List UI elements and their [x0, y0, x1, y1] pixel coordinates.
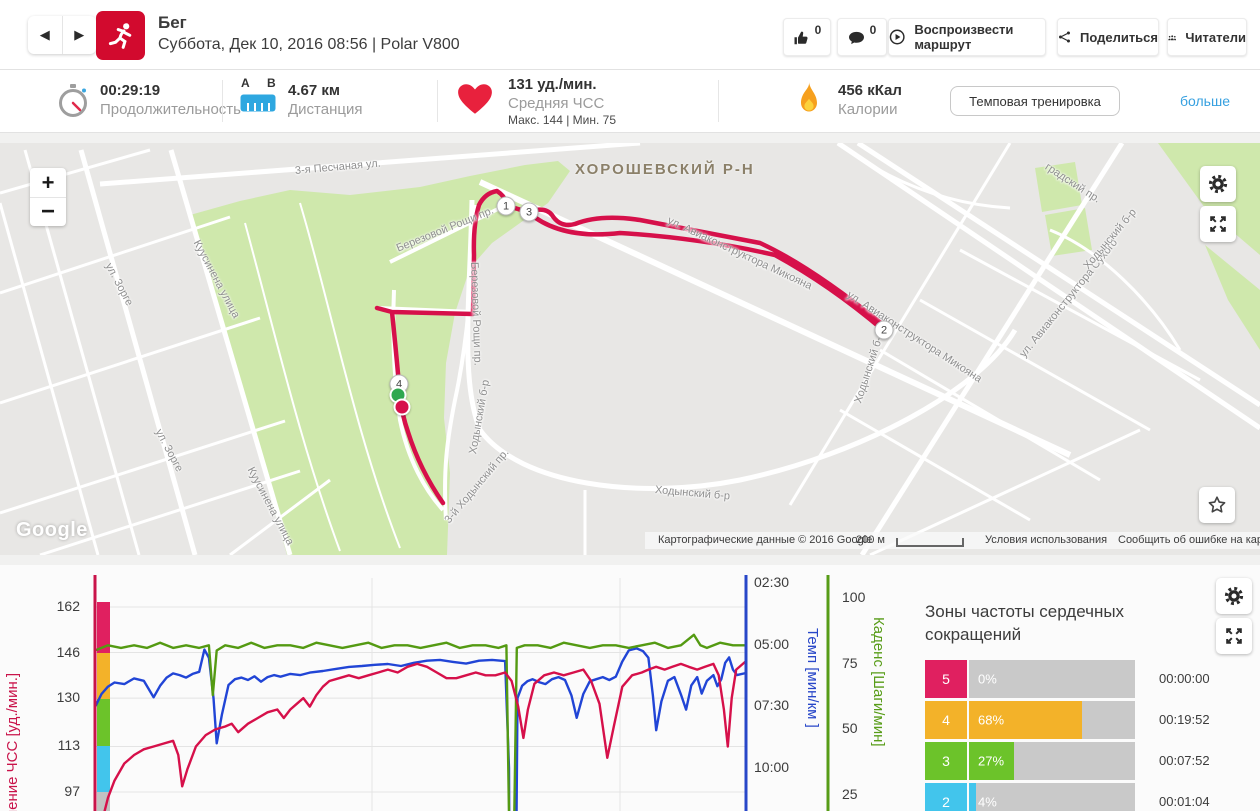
zone-time: 00:01:04	[1159, 783, 1210, 811]
map-attribution: Картографические данные © 2016 Google	[658, 534, 872, 546]
district-label: ХОРОШЕВСКИЙ Р-Н	[575, 161, 755, 178]
zone-time: 00:00:00	[1159, 660, 1210, 698]
comment-count: 0	[870, 23, 877, 37]
route-km-marker[interactable]: 3	[520, 203, 539, 222]
share-icon	[1058, 29, 1071, 45]
play-route-button[interactable]: Воспроизвести маршрут	[888, 18, 1046, 56]
gear-icon	[1223, 585, 1245, 607]
pace-axis-label: Темп [мин/км ]	[804, 628, 821, 811]
next-workout-button[interactable]: ▶	[63, 16, 97, 54]
stats-bar: 00:29:19 Продолжительность A B 4.67 км Д…	[0, 70, 1260, 133]
hr-zone-row: 24%00:01:04	[925, 783, 1210, 811]
divider	[437, 80, 438, 122]
next-arrow-icon: ▶	[74, 27, 84, 43]
hr-zone-row: 468%00:19:52	[925, 701, 1210, 739]
training-chart-section: 1621461301139702:3005:0007:3010:00100755…	[0, 565, 1260, 811]
star-icon	[1207, 495, 1227, 515]
more-link[interactable]: больше	[1180, 93, 1230, 109]
axis-tick: 162	[30, 598, 80, 614]
hr-axis-label: Значение ЧСС [уд./мин.]	[4, 633, 21, 811]
series-hr	[95, 661, 746, 811]
like-button[interactable]: 0	[783, 18, 831, 56]
axis-tick: 50	[842, 720, 858, 736]
readers-label: Читатели	[1185, 30, 1246, 45]
readers-button[interactable]: Читатели	[1167, 18, 1247, 56]
training-benefit-button[interactable]: Темповая тренировка	[950, 86, 1120, 116]
route-a-label: A	[241, 76, 250, 90]
workout-pager: ◀ ▶	[28, 16, 96, 54]
duration-value: 00:29:19	[100, 82, 160, 99]
axis-tick: 75	[842, 655, 858, 671]
distance-label: Дистанция	[288, 101, 362, 118]
cadence-axis-label: Каденс [Шаги/мин]	[870, 617, 887, 811]
zone-bar-track: 4%	[969, 783, 1135, 811]
workout-title: Бег	[158, 13, 187, 33]
zone-bar-track: 27%	[969, 742, 1135, 780]
avg-hr-label: Средняя ЧСС	[508, 95, 604, 112]
map-settings-button[interactable]	[1200, 166, 1236, 202]
running-sport-icon	[96, 11, 145, 60]
hr-max-min: Макс. 144 | Мин. 75	[508, 113, 616, 127]
axis-tick: 97	[30, 783, 80, 799]
share-label: Поделиться	[1080, 30, 1158, 45]
training-benefit-label: Темповая тренировка	[969, 94, 1101, 109]
zone-time: 00:07:52	[1159, 742, 1210, 780]
distance-ruler-icon	[240, 94, 276, 112]
avg-hr-value: 131 уд./мин.	[508, 76, 597, 93]
axis-tick: 130	[30, 689, 80, 705]
axis-tick: 25	[842, 786, 858, 802]
zoom-out-button[interactable]: −	[30, 198, 66, 226]
chart-settings-button[interactable]	[1216, 578, 1252, 614]
duration-label: Продолжительность	[100, 101, 241, 118]
zone-bar-fill	[969, 783, 976, 811]
route-b-label: B	[267, 76, 276, 90]
zone-number: 4	[925, 701, 967, 739]
thumbs-up-icon	[793, 29, 810, 46]
zone-percent: 0%	[978, 672, 997, 687]
map-zoom-control: + −	[30, 168, 66, 226]
people-icon	[1168, 30, 1176, 45]
zone-percent: 27%	[978, 754, 1004, 769]
hr-zone-row: 327%00:07:52	[925, 742, 1210, 780]
chart-fullscreen-button[interactable]	[1216, 618, 1252, 654]
axis-tick: 02:30	[754, 574, 789, 590]
flame-icon	[796, 80, 822, 120]
comment-button[interactable]: 0	[837, 18, 887, 56]
hr-zone-row: 50%00:00:00	[925, 660, 1210, 698]
axis-tick: 10:00	[754, 759, 789, 775]
map-fullscreen-button[interactable]	[1200, 206, 1236, 242]
expand-icon	[1208, 214, 1228, 234]
expand-icon	[1224, 626, 1244, 646]
distance-value: 4.67 км	[288, 82, 340, 99]
axis-tick: 146	[30, 644, 80, 660]
share-button[interactable]: Поделиться	[1057, 18, 1159, 56]
prev-arrow-icon: ◀	[40, 27, 50, 43]
play-route-label: Воспроизвести маршрут	[914, 22, 1045, 52]
prev-workout-button[interactable]: ◀	[28, 16, 63, 54]
zone-percent: 68%	[978, 713, 1004, 728]
zoom-in-button[interactable]: +	[30, 168, 66, 198]
map-terms-link[interactable]: Условия использования	[985, 534, 1107, 546]
divider	[222, 80, 223, 122]
hr-zones-table: 50%00:00:00468%00:19:52327%00:07:5224%00…	[925, 660, 1210, 811]
zone-number: 5	[925, 660, 967, 698]
route-map[interactable]: ХОРОШЕВСКИЙ Р-Н 3-я Песчаная ул.Куусинен…	[0, 143, 1260, 555]
zone-time: 00:19:52	[1159, 701, 1210, 739]
polar-flow-training-page: ◀ ▶ Бег Суббота, Дек 10, 2016 08:56 | Po…	[0, 0, 1260, 811]
map-canvas	[0, 143, 1260, 555]
map-scale-label: 200 м	[856, 534, 885, 546]
series-pace	[95, 648, 746, 811]
axis-tick: 07:30	[754, 697, 789, 713]
stop-marker[interactable]	[394, 399, 411, 416]
zone-bar-track: 0%	[969, 660, 1135, 698]
play-circle-icon	[889, 27, 905, 47]
zone-number: 2	[925, 783, 967, 811]
heart-icon	[456, 82, 494, 116]
stopwatch-icon	[56, 83, 90, 119]
like-count: 0	[815, 23, 822, 37]
map-report-error-link[interactable]: Сообщить об ошибке на карте	[1118, 534, 1260, 546]
calories-label: Калории	[838, 101, 897, 118]
axis-tick: 100	[842, 589, 865, 605]
calories-value: 456 кКал	[838, 82, 902, 99]
axis-tick: 05:00	[754, 636, 789, 652]
map-scale-bar	[896, 538, 964, 547]
axis-tick: 113	[30, 737, 80, 753]
map-favorite-button[interactable]	[1199, 487, 1235, 523]
hr-zone-band	[97, 602, 110, 811]
divider	[718, 80, 719, 122]
header: ◀ ▶ Бег Суббота, Дек 10, 2016 08:56 | Po…	[0, 0, 1260, 70]
route-km-marker[interactable]: 2	[875, 321, 894, 340]
hr-zones-title: Зоны частоты сердечных сокращений	[925, 601, 1197, 647]
google-logo: Google	[16, 519, 88, 542]
zone-number: 3	[925, 742, 967, 780]
workout-subtitle: Суббота, Дек 10, 2016 08:56 | Polar V800	[158, 36, 460, 54]
zone-percent: 4%	[978, 795, 997, 810]
comment-icon	[848, 30, 865, 45]
route-km-marker[interactable]: 1	[497, 197, 516, 216]
zone-bar-track: 68%	[969, 701, 1135, 739]
gear-icon	[1207, 173, 1229, 195]
